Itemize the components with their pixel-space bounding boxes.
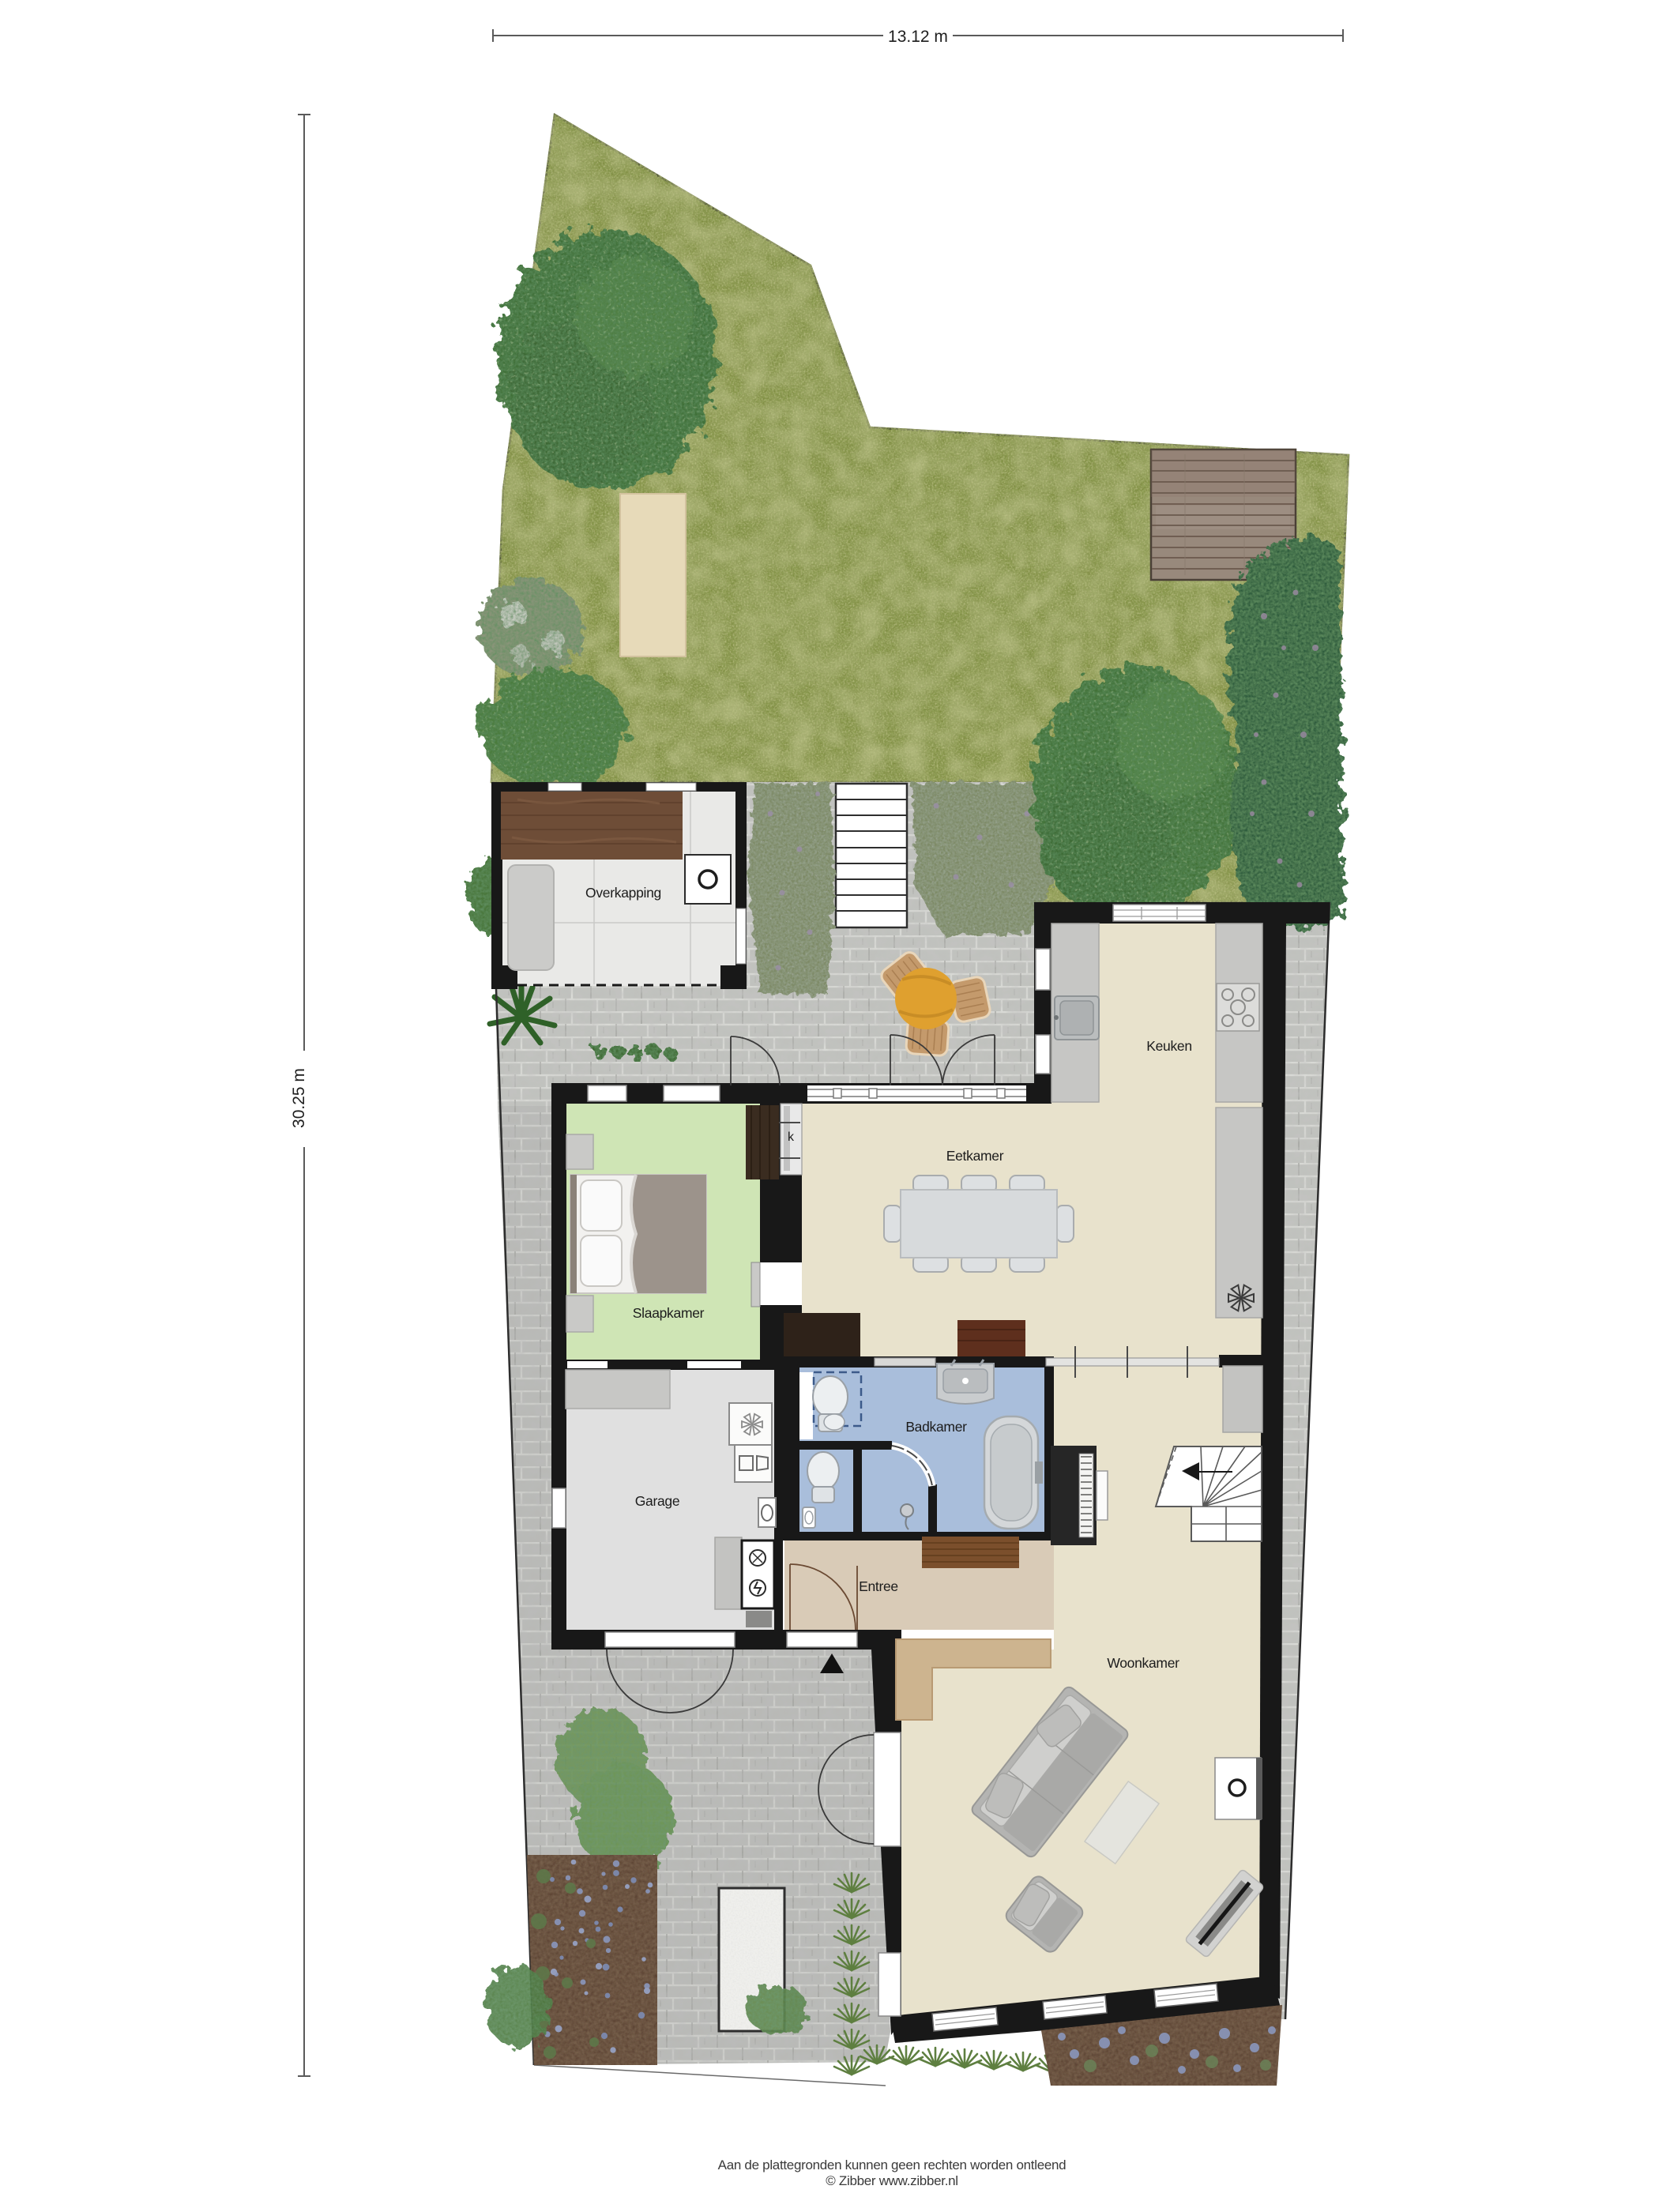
svg-text:Entree: Entree [859, 1578, 898, 1594]
svg-text:k: k [788, 1130, 795, 1144]
svg-text:Aan de plattegronden kunnen ge: Aan de plattegronden kunnen geen rechten… [718, 2157, 1066, 2172]
svg-text:Woonkamer: Woonkamer [1107, 1655, 1179, 1671]
svg-text:Slaapkamer: Slaapkamer [633, 1305, 705, 1321]
svg-text:30.25 m: 30.25 m [290, 1068, 308, 1128]
svg-text:© Zibber www.zibber.nl: © Zibber www.zibber.nl [826, 2173, 958, 2188]
svg-text:Badkamer: Badkamer [905, 1419, 967, 1435]
svg-text:13.12 m: 13.12 m [888, 28, 948, 46]
svg-text:Garage: Garage [635, 1493, 680, 1509]
svg-text:Overkapping: Overkapping [585, 885, 661, 901]
svg-text:Keuken: Keuken [1146, 1038, 1192, 1054]
svg-text:Eetkamer: Eetkamer [946, 1148, 1004, 1164]
